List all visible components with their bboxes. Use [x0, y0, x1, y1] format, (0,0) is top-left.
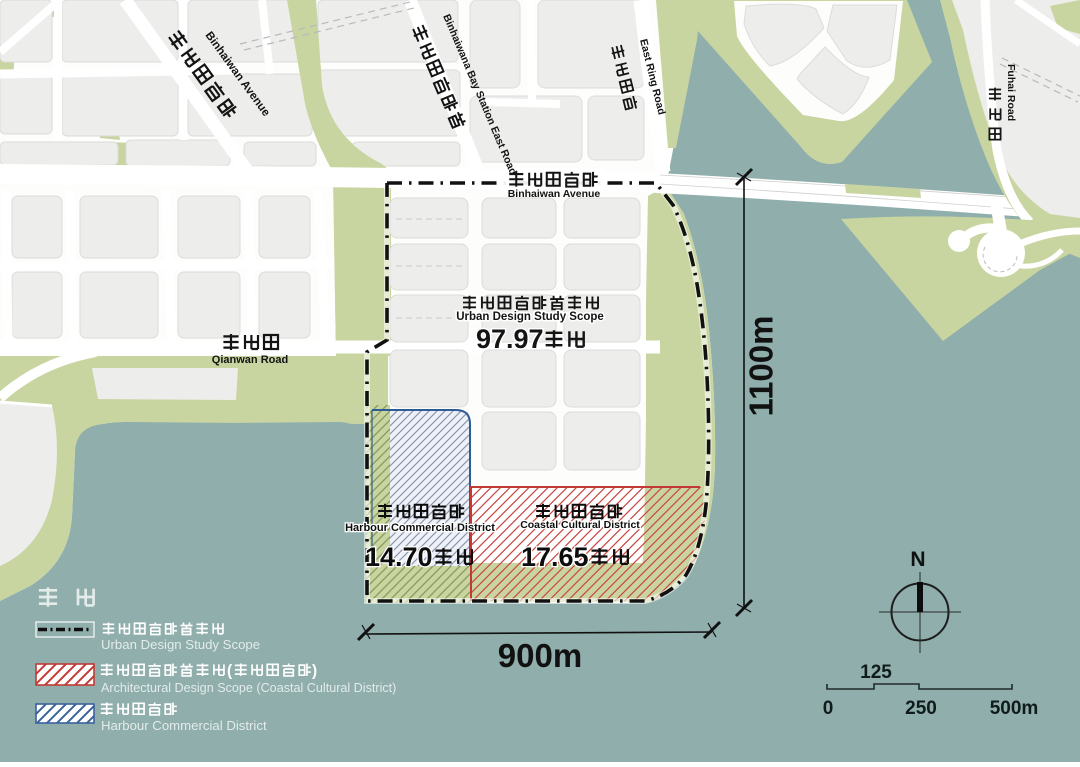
svg-text:0: 0	[823, 698, 834, 719]
svg-text:Harbour Commercial District: Harbour Commercial District	[101, 718, 267, 733]
svg-text:Coastal Cultural District: Coastal Cultural District	[520, 519, 640, 531]
svg-text:1100m: 1100m	[743, 316, 780, 417]
svg-text:500m: 500m	[990, 698, 1039, 719]
svg-text:Urban Design Study Scope: Urban Design Study Scope	[456, 311, 604, 323]
svg-text:): )	[312, 663, 317, 680]
svg-text:Qianwan Road: Qianwan Road	[212, 354, 288, 366]
svg-text:17.65: 17.65	[521, 542, 589, 572]
svg-text:Architectural Design Scope (Co: Architectural Design Scope (Coastal Cult…	[101, 681, 396, 695]
svg-text:900m: 900m	[498, 637, 582, 674]
svg-text:97.97: 97.97	[476, 324, 544, 354]
svg-text:N: N	[910, 548, 925, 571]
svg-text:Urban Design Study Scope: Urban Design Study Scope	[101, 637, 260, 652]
svg-text:14.70: 14.70	[365, 542, 433, 572]
svg-text:Binhaiwan Avenue: Binhaiwan Avenue	[508, 188, 601, 200]
svg-text:Fuhai Road: Fuhai Road	[1005, 64, 1017, 121]
svg-text:(: (	[227, 663, 233, 680]
svg-text:250: 250	[905, 698, 937, 719]
svg-text:Harbour Commercial District: Harbour Commercial District	[345, 522, 495, 534]
svg-text:125: 125	[860, 662, 892, 683]
